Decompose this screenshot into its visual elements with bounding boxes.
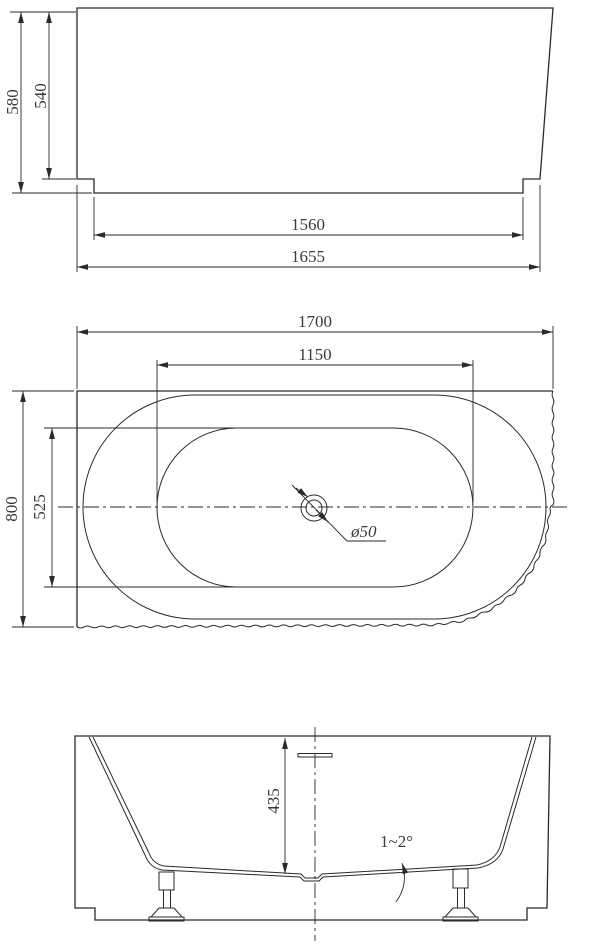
foot-block [453, 869, 468, 888]
dim-body-height: 540 [31, 12, 76, 179]
ext-lines [157, 360, 473, 503]
foot-stem [458, 888, 465, 908]
section-shell-inner-surface [93, 737, 532, 878]
ext-lines [10, 12, 92, 193]
slope-annotation: 1~2° [380, 832, 413, 902]
dim-label-1700: 1700 [298, 312, 332, 331]
section-outline [75, 736, 550, 920]
dim-base-length: 1560 [94, 197, 523, 240]
slope-leader [396, 863, 404, 902]
bathtub-drawing: 580 540 1560 1655 1700 1150 [0, 0, 601, 950]
foot-base [151, 908, 182, 917]
front-outline [77, 8, 553, 193]
dim-label-435: 435 [264, 788, 283, 814]
plan-inner-rim [157, 428, 473, 587]
dim-label-540: 540 [31, 83, 50, 109]
foot-block [159, 872, 174, 890]
dim-label-slope: 1~2° [380, 832, 413, 851]
dim-label-1150: 1150 [298, 345, 331, 364]
foot-base [445, 908, 476, 917]
drawing-page: 580 540 1560 1655 1700 1150 [0, 0, 601, 950]
dim-label-525: 525 [30, 494, 49, 520]
front-view: 580 540 1560 1655 [3, 8, 553, 272]
dim-label-800: 800 [2, 496, 21, 522]
foot-stem [164, 890, 171, 908]
dim-inner-length: 1150 [157, 345, 473, 503]
section-view: 435 1~2° [75, 727, 550, 941]
dim-label-drain: ø50 [350, 522, 377, 541]
dim-label-580: 580 [3, 89, 22, 115]
dim-inner-depth: 435 [264, 738, 285, 874]
ext-lines [44, 428, 240, 587]
section-shell-outer-surface [89, 737, 536, 881]
left-foot [149, 872, 184, 921]
plan-view: 1700 1150 ø50 800 525 [2, 312, 567, 628]
dim-label-1560: 1560 [291, 215, 325, 234]
dim-inner-width: 525 [30, 428, 240, 587]
drain: ø50 [292, 485, 386, 541]
right-foot [443, 869, 478, 921]
dim-label-1655: 1655 [291, 247, 325, 266]
